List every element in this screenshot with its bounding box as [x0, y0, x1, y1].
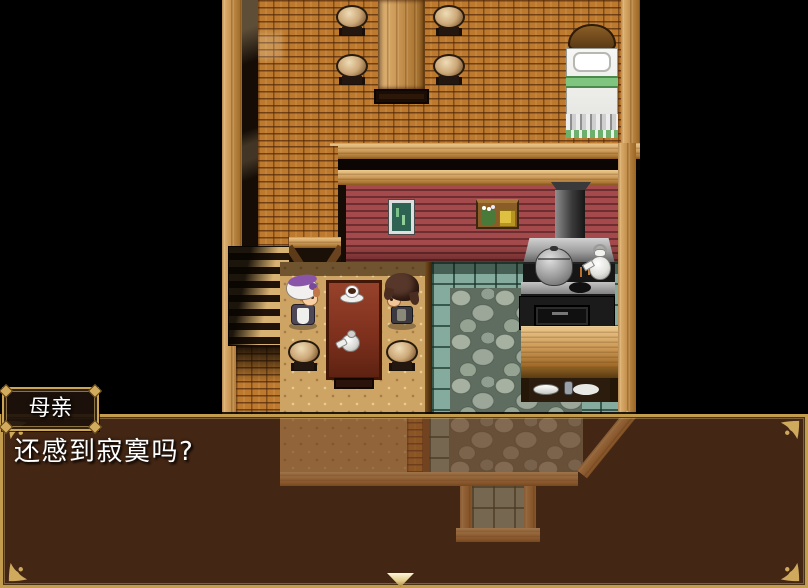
speaker-name: 母亲 [4, 389, 97, 429]
teacup [340, 285, 364, 303]
stool [336, 54, 368, 85]
window-corner-ornament [7, 561, 29, 583]
pillar [378, 0, 425, 89]
bed [566, 24, 620, 138]
bed-pillow [573, 52, 611, 72]
advance-cursor [387, 573, 414, 587]
left-wall-shadow [242, 0, 258, 248]
right-wall-mid [618, 143, 636, 415]
message-window[interactable]: 还感到寂寞吗? [0, 414, 808, 588]
stool [288, 340, 320, 371]
dialogue-text: 还感到寂寞吗? [14, 431, 784, 468]
wall-beam [330, 143, 640, 159]
window-corner-ornament [779, 561, 801, 583]
pillar-base-step [374, 89, 429, 104]
wall-shelf [476, 199, 519, 229]
stove-base [519, 296, 615, 330]
bed-green-band [566, 76, 618, 88]
stool [433, 54, 465, 85]
bed-foot-edge [566, 130, 618, 138]
kitchen-counter [521, 326, 618, 402]
game-screen[interactable]: 还感到寂寞吗? 母亲 [0, 0, 808, 588]
plates [533, 384, 559, 395]
teapot [336, 330, 364, 354]
stool [386, 340, 418, 371]
table-legs [334, 378, 374, 389]
stool [433, 5, 465, 36]
stool [336, 5, 368, 36]
jar [564, 381, 573, 395]
picture-frame [389, 200, 414, 234]
brick-wall-mid [258, 146, 338, 248]
stove-chimney [555, 190, 585, 244]
bed-fringe [566, 114, 618, 130]
bed-headboard [568, 24, 616, 50]
mother-sprite [285, 274, 321, 332]
boy-sprite [384, 272, 420, 330]
right-wall-top [621, 0, 640, 143]
cooking-pot [535, 248, 573, 286]
beam-gap-shadow [338, 159, 640, 170]
name-box: 母亲 [2, 387, 99, 431]
stove [517, 182, 617, 338]
stove-kettle [583, 244, 613, 284]
